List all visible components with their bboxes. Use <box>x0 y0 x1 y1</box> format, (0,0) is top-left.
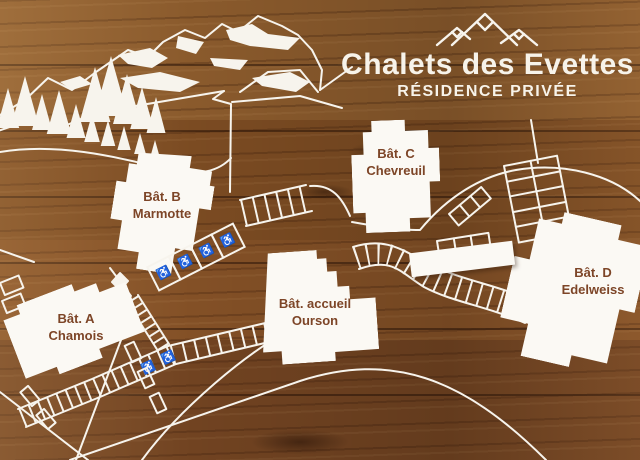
mountain-ridge-line <box>0 16 322 118</box>
wheelchair-icon: ♿ <box>198 244 215 260</box>
sign-subtitle: RÉSIDENCE PRIVÉE <box>341 83 634 101</box>
building-name: Bât. B <box>133 189 192 206</box>
building-name: Bât. A <box>49 311 104 328</box>
road-line <box>310 186 350 216</box>
building-accueil-label: Bât. accueil Ourson <box>279 296 351 330</box>
building-subname: Marmotte <box>133 206 192 223</box>
wheelchair-icon: ♿ <box>219 233 236 249</box>
road-line <box>70 369 546 460</box>
parking-space <box>0 276 23 296</box>
parking-space <box>20 386 39 406</box>
building-subname: Chamois <box>49 328 104 345</box>
mountain-logo-icon <box>437 14 537 45</box>
wheelchair-icon: ♿ <box>155 265 172 281</box>
parking-space <box>150 393 167 414</box>
road-line <box>531 120 538 163</box>
parking-row <box>240 185 312 226</box>
wooden-site-map-sign: ♿ ♿ <box>0 0 640 460</box>
road-line <box>0 250 34 262</box>
building-name: Bât. accueil <box>279 296 351 313</box>
road-line <box>0 392 88 460</box>
building-d-label: Bât. D Edelweiss <box>562 265 625 299</box>
building-c-label: Bât. C Chevreuil <box>366 146 425 180</box>
building-b-label: Bât. B Marmotte <box>133 189 192 223</box>
sign-title: Chalets des Evettes <box>341 50 634 80</box>
parking-row <box>449 187 491 225</box>
building-subname: Chevreuil <box>366 163 425 180</box>
building-subname: Edelweiss <box>562 282 625 299</box>
wheelchair-icon: ♿ <box>177 254 194 270</box>
fir-tree-icons <box>0 56 165 158</box>
building-name: Bât. D <box>562 265 625 282</box>
sign-title-block: Chalets des Evettes RÉSIDENCE PRIVÉE <box>341 50 634 101</box>
road-line <box>213 91 231 192</box>
building-name: Bât. C <box>366 146 425 163</box>
building-a-label: Bât. A Chamois <box>49 311 104 345</box>
parking-space <box>125 342 142 363</box>
building-subname: Ourson <box>279 313 351 330</box>
road-line <box>232 96 342 108</box>
